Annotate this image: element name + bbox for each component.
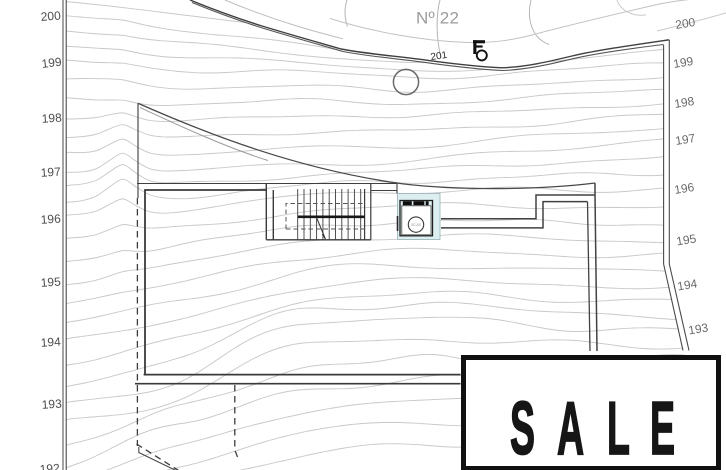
svg-text:197: 197 <box>674 131 696 148</box>
svg-text:SC.AS: SC.AS <box>411 223 421 227</box>
svg-text:Nº 22: Nº 22 <box>416 9 459 28</box>
svg-text:193: 193 <box>687 320 709 337</box>
svg-text:199: 199 <box>41 55 63 71</box>
svg-text:200: 200 <box>40 9 61 24</box>
svg-text:195: 195 <box>675 231 697 248</box>
svg-text:195: 195 <box>40 275 61 290</box>
svg-text:201: 201 <box>430 50 448 63</box>
svg-text:200: 200 <box>674 15 696 32</box>
svg-text:194: 194 <box>676 276 698 293</box>
svg-text:197: 197 <box>40 165 61 180</box>
svg-text:196: 196 <box>673 180 695 197</box>
svg-text:194: 194 <box>40 335 61 350</box>
svg-text:192: 192 <box>39 461 60 470</box>
svg-text:198: 198 <box>41 111 62 126</box>
svg-text:193: 193 <box>41 397 62 412</box>
svg-text:199: 199 <box>672 54 694 71</box>
svg-text:198: 198 <box>673 94 695 111</box>
svg-text:196: 196 <box>40 212 61 227</box>
